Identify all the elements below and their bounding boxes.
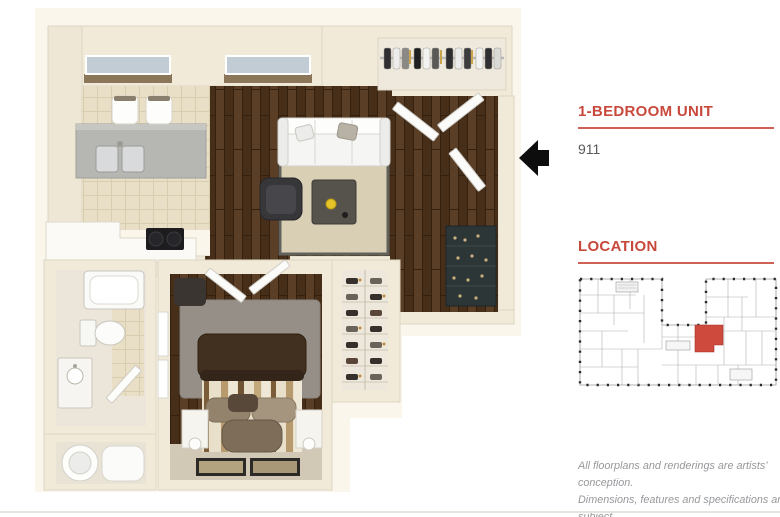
faucet-icon [117,141,123,147]
disclaimer: All floorplans and renderings are artist… [578,458,780,517]
coffee-table [312,180,356,224]
unit-section: 1-BEDROOM UNIT 911 [578,103,778,157]
entry-arrow-icon [519,140,549,176]
armchair [260,178,302,220]
bed [198,334,306,452]
bedroom [158,260,332,490]
dryer-icon [102,446,144,481]
disclaimer-line: All floorplans and renderings are artist… [578,458,780,492]
location-title: LOCATION [578,238,778,255]
window-icon [86,56,170,74]
vanity-icon [58,358,92,408]
sink-icon [96,146,118,172]
kitchen-island [76,124,206,178]
window-icon [158,360,168,398]
shoe-closet [332,260,400,402]
toilet-icon [80,320,125,346]
decor-bowl-icon [326,199,336,209]
window-icon [226,56,310,74]
floorplan-rendering [0,0,562,517]
info-panel: 1-BEDROOM UNIT 911 LOCATION [578,0,778,517]
bench-icon [174,278,206,306]
window-icon [158,312,168,356]
bar-cabinet [446,226,496,306]
location-section: LOCATION [578,238,778,396]
location-keyplan [578,273,778,391]
pillow-icon [337,122,359,140]
location-title-rule [578,262,774,264]
floorplan-image [0,0,562,517]
unit-title-rule [578,127,774,129]
disclaimer-line: Dimensions, features and specifications … [578,492,780,517]
sofa [278,118,390,166]
unit-title: 1-BEDROOM UNIT [578,103,778,120]
bottom-divider [0,511,780,513]
pillow-icon [252,398,296,422]
entry-closet [378,38,506,90]
unit-number: 911 [578,141,778,157]
floorplan-page: 1-BEDROOM UNIT 911 LOCATION [0,0,780,517]
sink-icon [122,146,144,172]
laundry-closet [44,434,156,490]
bathroom [44,260,156,434]
lamp-icon [189,438,201,450]
cushion-icon [222,420,282,452]
pillow-icon [228,394,258,412]
bathtub-icon [84,271,144,309]
lamp-icon [303,438,315,450]
